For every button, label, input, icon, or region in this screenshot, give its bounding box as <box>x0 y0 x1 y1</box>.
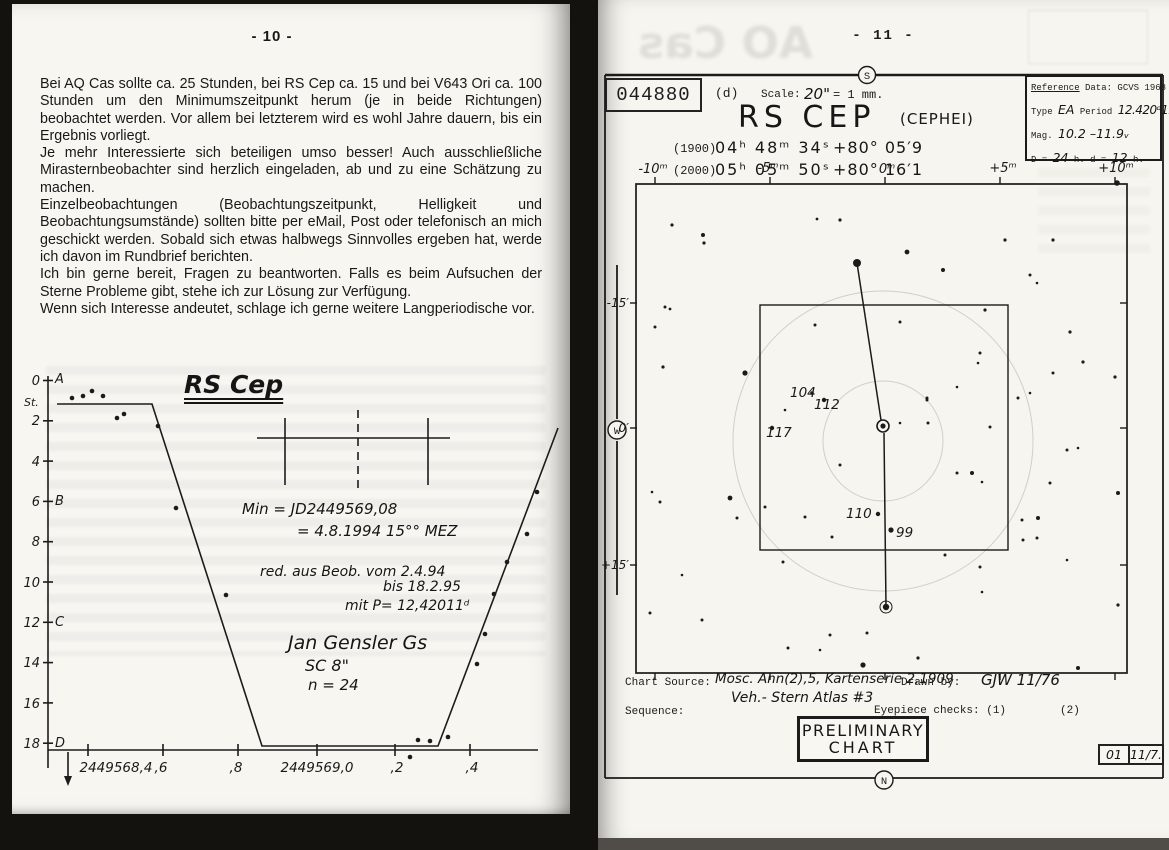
y-tick-label: 2 <box>32 414 40 429</box>
left-page: - 10 - Bei AQ Cas sollte ca. 25 Stunden,… <box>12 4 570 814</box>
star-dot <box>1003 238 1006 241</box>
star-dot <box>649 612 652 615</box>
star-dot <box>651 491 654 494</box>
paragraph: Ich bin gerne bereit, Fragen zu beantwor… <box>40 266 542 301</box>
revision-code-box: 01 11/7. <box>1098 744 1164 765</box>
star-dot <box>804 516 807 519</box>
star-dot <box>944 554 947 557</box>
star-dot <box>941 268 945 272</box>
observation-dot <box>81 394 86 399</box>
svg-text:S: S <box>864 71 870 83</box>
star-dot <box>659 501 662 504</box>
star-dot <box>1066 449 1069 452</box>
y-tick-label: 0 <box>32 374 40 389</box>
y-tick-label: 6 <box>32 495 40 510</box>
drawn-by-label: Drawn by: <box>901 677 960 689</box>
variable-star-marker <box>853 259 892 613</box>
body-paragraphs: Bei AQ Cas sollte ca. 25 Stunden, bei RS… <box>40 76 542 318</box>
star-dot <box>899 422 902 425</box>
star-dot <box>1052 372 1055 375</box>
star-dot <box>1049 482 1052 485</box>
ra-offset-label: 0ᵐ <box>879 162 895 177</box>
star-dot <box>736 517 739 520</box>
star-dot <box>819 649 822 652</box>
observation-dot <box>115 416 120 421</box>
step-letter: D <box>55 736 65 751</box>
star-dot <box>888 527 893 532</box>
star-dot <box>1029 274 1032 277</box>
right-page-number: - 11 - <box>598 28 1169 44</box>
star-dot <box>1029 392 1032 395</box>
sequence-label: Sequence: <box>625 706 684 718</box>
star-dot <box>814 324 817 327</box>
star-dot <box>970 471 974 475</box>
y-axis-label: St. <box>24 396 39 409</box>
paragraph: Bei AQ Cas sollte ca. 25 Stunden, bei RS… <box>40 76 542 145</box>
ra-offset-label: -10ᵐ <box>638 162 667 177</box>
star-dot <box>702 241 705 244</box>
star-dot <box>1068 330 1071 333</box>
star-dot <box>838 218 841 221</box>
paragraph: Einzelbeobachtungen (Beobachtungszeitpun… <box>40 197 542 266</box>
star-dot <box>770 426 774 430</box>
y-tick-label: 14 <box>23 656 40 671</box>
observation-dot <box>224 593 229 598</box>
sequence-value: Veh.- Stern Atlas #3 <box>731 690 873 706</box>
star-dot <box>905 250 910 255</box>
star-dot <box>1036 537 1039 540</box>
star-dot <box>1066 559 1069 562</box>
right-page: AO Cas - 11 - 044880 (d) Scale: 20" = 1 … <box>598 0 1169 842</box>
star-dot <box>831 536 834 539</box>
star-dot <box>1081 360 1084 363</box>
star-dot <box>787 647 790 650</box>
star-dot <box>983 308 986 311</box>
y-tick-label: 12 <box>23 616 40 631</box>
star-dot <box>664 306 667 309</box>
star-dot <box>839 464 842 467</box>
star-dot <box>979 352 982 355</box>
star-dot <box>1017 397 1020 400</box>
y-tick-label: 10 <box>23 576 40 591</box>
star-dot <box>1051 238 1054 241</box>
chart-frame <box>636 184 1127 673</box>
observation-dot <box>492 592 497 597</box>
stamp-line-2: CHART <box>800 738 926 757</box>
star-dot <box>1076 666 1080 670</box>
dec-offset-label: 0′ <box>619 421 630 435</box>
drawn-by-value: GJW 11/76 <box>981 671 1060 689</box>
x-tick-label: ,6 <box>155 760 168 776</box>
eyepiece-field-circles <box>733 291 1033 591</box>
star-dot <box>810 391 814 395</box>
scanner-bed-artifact <box>598 838 1169 850</box>
observation-dot <box>428 739 433 744</box>
observation-dot <box>505 560 510 565</box>
observation-dot <box>70 396 75 401</box>
svg-text:N: N <box>881 776 887 788</box>
light-curve-figure: 0 2 4 6 8 10 12 14 16 18 A B C D St. 244 <box>22 356 567 806</box>
star-dot <box>1022 539 1025 542</box>
observation-dot <box>90 389 95 394</box>
preliminary-chart-stamp: PRELIMINARY CHART <box>797 716 929 762</box>
ra-offset-label: -5ᵐ <box>757 161 778 176</box>
step-letter: B <box>55 494 64 509</box>
sequence-label-110: 110 <box>846 506 872 522</box>
star-dot <box>681 574 684 577</box>
star-dot <box>661 365 664 368</box>
star-dot <box>876 512 880 516</box>
star-dot <box>1114 180 1120 186</box>
star-dot <box>728 496 733 501</box>
observation-dot <box>122 412 127 417</box>
y-tick-label: 8 <box>32 535 40 550</box>
x-tick-label: ,2 <box>391 760 404 776</box>
ra-offset-label: +5ᵐ <box>989 161 1016 176</box>
star-dot <box>654 326 657 329</box>
star-dot <box>899 321 902 324</box>
observation-dot <box>535 490 540 495</box>
star-dot <box>860 662 865 667</box>
star-dot <box>816 218 819 221</box>
star-dot <box>979 566 982 569</box>
star-dot <box>1077 447 1080 450</box>
sequence-label-99: 99 <box>896 525 913 541</box>
star-dot <box>927 422 930 425</box>
down-arrow-head <box>64 776 72 786</box>
star-dot <box>926 399 929 402</box>
observation-dot <box>525 532 530 537</box>
chart-source-label: Chart Source: <box>625 677 711 689</box>
star-dot <box>981 481 984 484</box>
star-dot <box>782 561 785 564</box>
observation-dot <box>174 506 179 511</box>
star-dot <box>784 409 787 412</box>
star-dot <box>829 634 832 637</box>
observation-dot <box>483 632 488 637</box>
star-dot <box>701 619 704 622</box>
star-dot <box>977 362 980 365</box>
star-dot <box>742 370 747 375</box>
paragraph: Wenn sich Interesse andeutet, schlage ic… <box>40 301 542 318</box>
scanned-book-spread: - 10 - Bei AQ Cas sollte ca. 25 Stunden,… <box>0 0 1169 850</box>
y-tick-label: 16 <box>23 697 40 712</box>
observation-points <box>70 389 540 760</box>
star-dot <box>989 426 992 429</box>
star-dot <box>1036 516 1040 520</box>
star-dot <box>956 386 959 389</box>
paragraph: Je mehr Interessierte sich beteiligen um… <box>40 145 542 197</box>
star-dot <box>1113 375 1116 378</box>
revision-code-2: 11/7. <box>1130 746 1162 763</box>
star-dot <box>1116 603 1119 606</box>
ra-offset-label: +10ᵐ <box>1098 161 1134 176</box>
star-dot <box>701 233 705 237</box>
observation-dot <box>475 662 480 667</box>
dec-offset-label: +15′ <box>601 558 629 572</box>
star-dot <box>670 223 673 226</box>
star-dot <box>866 632 869 635</box>
observation-dot <box>408 755 413 760</box>
left-page-number: - 10 - <box>12 28 532 45</box>
observation-dot <box>156 424 161 429</box>
observation-dot <box>416 738 421 743</box>
star-dot <box>1036 282 1039 285</box>
revision-code-1: 01 <box>1100 746 1130 763</box>
minimum-cross <box>257 410 450 492</box>
x-tick-label: 2449569,0 <box>280 760 353 776</box>
eyepiece-checks-2: (2) <box>1060 705 1080 717</box>
step-letter: C <box>55 615 65 630</box>
star-dot <box>1116 491 1120 495</box>
x-tick-label: ,4 <box>466 760 479 776</box>
observation-dot <box>101 394 106 399</box>
star-dot <box>669 308 672 311</box>
star-dot <box>916 656 919 659</box>
sequence-label-112: 112 <box>814 397 840 413</box>
x-tick-label: ,8 <box>230 760 243 776</box>
y-tick-label: 18 <box>23 737 40 752</box>
star-dot <box>981 591 984 594</box>
dec-offset-label: -15′ <box>607 296 630 310</box>
x-tick-label: 2449568,4 <box>79 760 152 776</box>
y-tick-label: 4 <box>32 455 40 470</box>
observation-dot <box>446 735 451 740</box>
step-letter: A <box>54 372 64 387</box>
star-dot <box>764 506 767 509</box>
star-dot <box>956 472 959 475</box>
light-curve-line <box>57 404 558 746</box>
star-dot <box>822 398 826 402</box>
star-dot <box>1021 519 1024 522</box>
